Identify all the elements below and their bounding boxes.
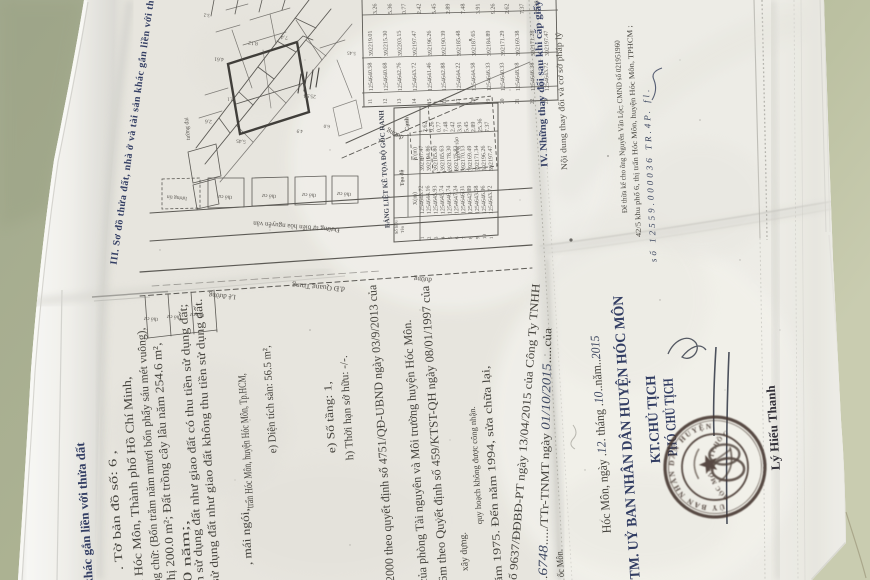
svg-text:7.37: 7.37 bbox=[519, 3, 526, 14]
svg-text:2.42: 2.42 bbox=[450, 121, 457, 132]
svg-text:10: 10 bbox=[483, 233, 488, 239]
svg-text:17: 17 bbox=[456, 98, 462, 104]
svg-text:5.45: 5.45 bbox=[431, 3, 438, 14]
svg-text:7.48: 7.48 bbox=[460, 3, 467, 14]
svg-text:11: 11 bbox=[368, 98, 374, 104]
svg-text:5.45: 5.45 bbox=[236, 137, 246, 144]
svg-text:14: 14 bbox=[412, 98, 418, 104]
svg-text:Số hiệu: Số hiệu bbox=[393, 220, 399, 235]
svg-text:4.61: 4.61 bbox=[214, 55, 224, 62]
svg-text:thổ cư: thổ cư bbox=[217, 193, 232, 201]
svg-text:13: 13 bbox=[397, 98, 403, 104]
svg-text:7.4: 7.4 bbox=[281, 34, 289, 40]
svg-text:20: 20 bbox=[500, 98, 506, 104]
svg-text:4.9: 4.9 bbox=[296, 128, 303, 133]
svg-text:25.36: 25.36 bbox=[477, 118, 484, 132]
svg-text:0.77: 0.77 bbox=[401, 3, 408, 14]
svg-text:2.62: 2.62 bbox=[504, 3, 511, 14]
svg-text:22: 22 bbox=[530, 98, 536, 104]
svg-text:25.94: 25.94 bbox=[303, 92, 316, 99]
svg-text:2.89: 2.89 bbox=[445, 3, 452, 14]
svg-text:3.2: 3.2 bbox=[203, 12, 210, 17]
svg-text:thổ cư: thổ cư bbox=[143, 315, 158, 323]
svg-text:9.26: 9.26 bbox=[429, 121, 436, 132]
svg-text:thổ cư: thổ cư bbox=[336, 190, 351, 198]
svg-text:2.89: 2.89 bbox=[471, 121, 478, 132]
svg-text:16: 16 bbox=[442, 98, 448, 104]
svg-text:thổ cư: thổ cư bbox=[261, 192, 276, 200]
svg-text:18: 18 bbox=[471, 98, 477, 104]
svg-text:15: 15 bbox=[427, 98, 433, 104]
svg-text:Tên: Tên bbox=[400, 225, 405, 233]
svg-text:3.91: 3.91 bbox=[457, 121, 464, 132]
svg-text:Cạnh: Cạnh bbox=[404, 116, 411, 131]
svg-text:12.1: 12.1 bbox=[227, 95, 237, 101]
svg-text:12: 12 bbox=[383, 98, 389, 104]
svg-text:3.91: 3.91 bbox=[475, 3, 482, 14]
svg-text:3.26: 3.26 bbox=[372, 3, 379, 14]
svg-text:Y(m): Y(m) bbox=[411, 147, 419, 160]
svg-text:21: 21 bbox=[515, 98, 521, 104]
svg-text:5.45: 5.45 bbox=[464, 121, 471, 132]
svg-text:thổ cư: thổ cư bbox=[301, 191, 316, 199]
svg-text:5.45: 5.45 bbox=[347, 49, 357, 55]
svg-text:2.6: 2.6 bbox=[205, 118, 213, 124]
svg-text:5.36: 5.36 bbox=[387, 3, 394, 14]
svg-text:Tọa độ: Tọa độ bbox=[399, 169, 406, 186]
svg-text:ốc Môn.: ốc Môn. bbox=[554, 549, 567, 578]
svg-text:6.0: 6.0 bbox=[323, 123, 330, 128]
svg-text:8.12: 8.12 bbox=[248, 39, 258, 46]
svg-text:đường: đường bbox=[413, 275, 432, 284]
svg-text:2.62: 2.62 bbox=[422, 121, 429, 132]
svg-text:7.48: 7.48 bbox=[443, 121, 450, 132]
svg-text:9.26: 9.26 bbox=[490, 3, 497, 14]
svg-text:2.42: 2.42 bbox=[416, 3, 423, 14]
svg-text:7.37: 7.37 bbox=[485, 121, 492, 132]
svg-text:0.77: 0.77 bbox=[436, 121, 443, 132]
svg-text:X(m): X(m) bbox=[411, 192, 419, 205]
